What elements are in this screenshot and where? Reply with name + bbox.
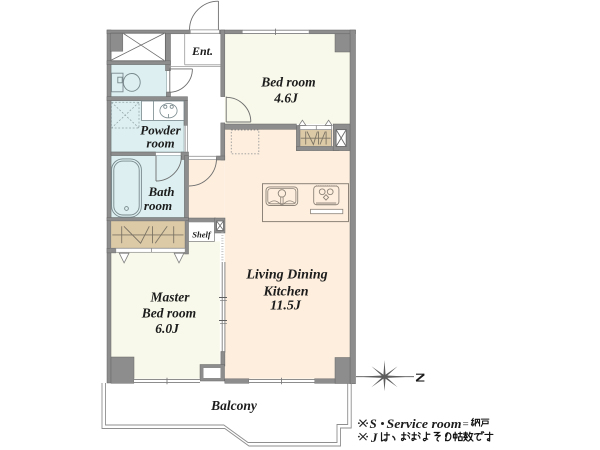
svg-text:Bed room: Bed room: [141, 306, 196, 321]
svg-text:Balcony: Balcony: [210, 398, 258, 413]
svg-text:room: room: [144, 198, 172, 213]
svg-text:Shelf: Shelf: [192, 230, 212, 240]
svg-text:Kitchen: Kitchen: [262, 285, 308, 300]
svg-text:Living Dining: Living Dining: [245, 268, 327, 283]
svg-text:Bath: Bath: [147, 184, 174, 199]
svg-text:Service room: Service room: [387, 417, 462, 431]
svg-text:11.5J: 11.5J: [270, 299, 302, 314]
svg-text:Ent.: Ent.: [191, 44, 213, 58]
svg-text:S: S: [370, 416, 377, 431]
svg-text:4.6J: 4.6J: [273, 91, 299, 106]
svg-text:room: room: [146, 136, 174, 151]
svg-text:Master: Master: [149, 290, 190, 305]
svg-text:Bed room: Bed room: [260, 75, 315, 90]
svg-text:=: =: [463, 419, 469, 431]
svg-text:6.0J: 6.0J: [155, 321, 180, 336]
svg-text:J: J: [370, 430, 378, 445]
